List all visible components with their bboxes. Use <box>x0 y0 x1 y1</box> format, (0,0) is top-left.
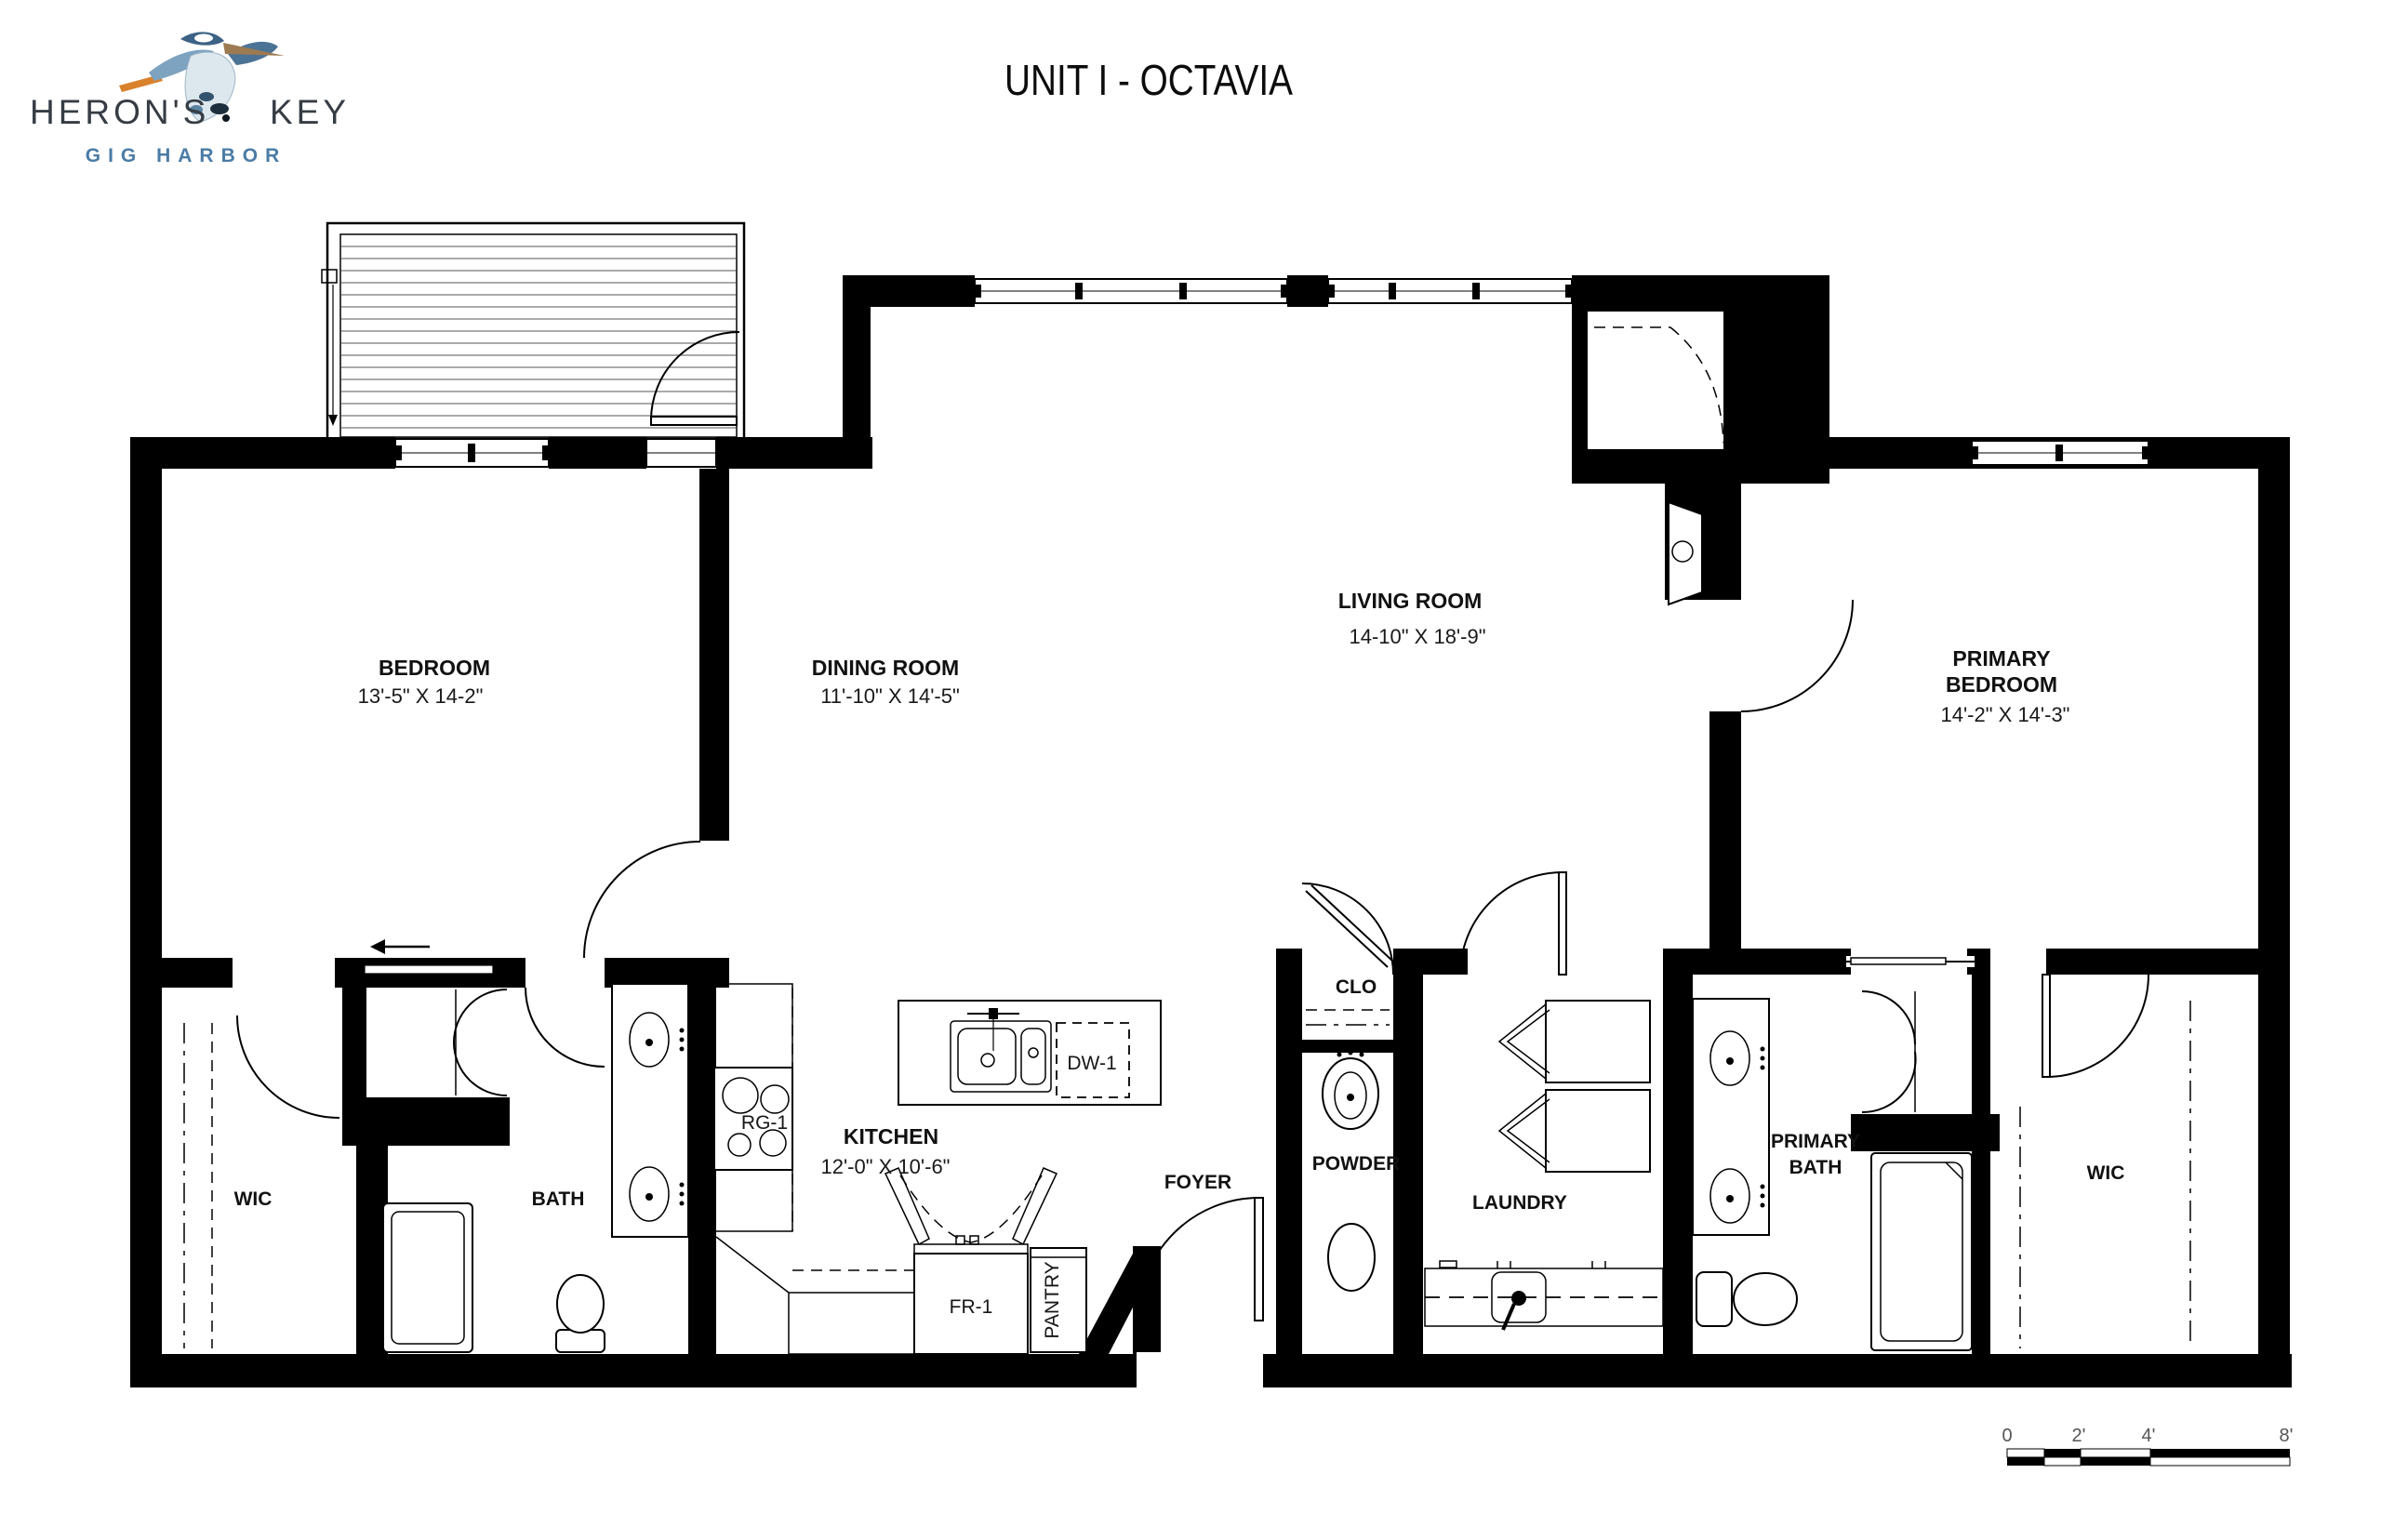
linen-closet <box>1862 991 1916 1112</box>
floor-plan-drawing: HERON'S KEY GIG HARBOR UNIT I - OCTAVIA <box>0 0 2381 1540</box>
primary-shower <box>1871 1153 1972 1350</box>
label-bath: BATH <box>532 1188 585 1210</box>
primary-bath-pocket-door <box>1846 956 1975 967</box>
tag-range: RG-1 <box>741 1112 788 1134</box>
dims-kitchen: 12'-0" X 10'-6" <box>821 1155 951 1178</box>
room-labels: BEDROOM 13'-5" X 14-2" DINING ROOM 11'-1… <box>234 589 2125 1214</box>
label-foyer: FOYER <box>1164 1172 1231 1193</box>
scale-4ft: 4' <box>2142 1426 2156 1446</box>
primary-bedroom-window <box>1972 441 2148 465</box>
laundry-door <box>1460 872 1566 975</box>
label-powder: POWDER <box>1312 1153 1401 1175</box>
page-title: UNIT I - OCTAVIA <box>1004 56 1293 104</box>
label-kitchen: KITCHEN <box>844 1124 938 1148</box>
kitchen-island <box>898 1001 1161 1105</box>
bedroom-window <box>395 439 549 467</box>
kitchen-counter-south <box>789 1293 914 1354</box>
clo-door <box>1302 883 1393 975</box>
brand-logo: HERON'S KEY GIG HARBOR <box>30 32 350 166</box>
scale-0: 0 <box>2002 1426 2012 1446</box>
laundry-counter <box>1425 1261 1663 1330</box>
clo-shelving <box>1306 1010 1390 1025</box>
bath-vanity <box>612 984 688 1237</box>
label-primary-bath-2: BATH <box>1789 1157 1842 1178</box>
label-primary-bedroom-2: BEDROOM <box>1946 672 2057 697</box>
label-primary-bath-1: PRIMARY <box>1771 1131 1860 1152</box>
brand-name-left: HERON'S <box>30 93 209 131</box>
brand-subtitle: GIG HARBOR <box>86 145 287 166</box>
bath-door <box>525 988 605 1067</box>
mechanical-closet <box>1587 311 1724 450</box>
laundry-fixtures <box>1425 1001 1663 1330</box>
slide-arrow-icon <box>370 939 385 954</box>
label-bedroom: BEDROOM <box>379 656 490 680</box>
scale-2ft: 2' <box>2072 1426 2086 1446</box>
bath-toilet <box>556 1275 605 1352</box>
tag-pantry: PANTRY <box>1042 1261 1063 1338</box>
floor-plan-page: HERON'S KEY GIG HARBOR UNIT I - OCTAVIA <box>0 0 2381 1540</box>
label-clo: CLO <box>1336 976 1377 998</box>
primary-bedroom-door <box>1741 600 1853 711</box>
label-wic-right: WIC <box>2087 1162 2125 1184</box>
wic-right-door <box>2042 975 2148 1077</box>
balcony <box>322 223 744 439</box>
dryer <box>1499 1090 1650 1172</box>
washer <box>1499 1001 1650 1082</box>
bedroom-door <box>584 842 700 958</box>
powder-toilet <box>1328 1224 1375 1291</box>
label-dining: DINING ROOM <box>812 656 959 680</box>
dining-window <box>975 279 1287 303</box>
entry-opening <box>1137 1352 1263 1389</box>
primary-toilet <box>1696 1272 1797 1326</box>
label-living: LIVING ROOM <box>1338 589 1483 613</box>
dims-living: 14-10" X 18'-9" <box>1349 625 1485 648</box>
powder-sink <box>1323 1051 1378 1130</box>
dims-bedroom: 13'-5" X 14-2" <box>358 684 484 708</box>
brand-name-right: KEY <box>270 93 350 131</box>
label-laundry: LAUNDRY <box>1472 1192 1567 1214</box>
bath-shower <box>383 1203 472 1352</box>
label-primary-bedroom-1: PRIMARY <box>1952 646 2050 670</box>
dims-dining: 11'-10" X 14'-5" <box>820 684 960 708</box>
media-niche <box>1669 502 1702 604</box>
dims-primary-bedroom: 14'-2" X 14'-3" <box>1941 703 2070 726</box>
balcony-door-sill <box>646 439 716 467</box>
wic-left-shelving <box>184 1023 212 1348</box>
bath-fixtures <box>383 984 688 1352</box>
scale-8ft: 8' <box>2280 1426 2294 1446</box>
wic-left-door <box>237 1016 339 1118</box>
tag-dishwasher: DW-1 <box>1067 1053 1116 1074</box>
primary-vanity <box>1693 999 1769 1235</box>
tag-refrigerator: FR-1 <box>950 1296 993 1318</box>
label-wic-left: WIC <box>234 1188 273 1210</box>
living-window <box>1328 279 1572 303</box>
scale-bar: 0 2' 4' 8' <box>2002 1426 2293 1466</box>
